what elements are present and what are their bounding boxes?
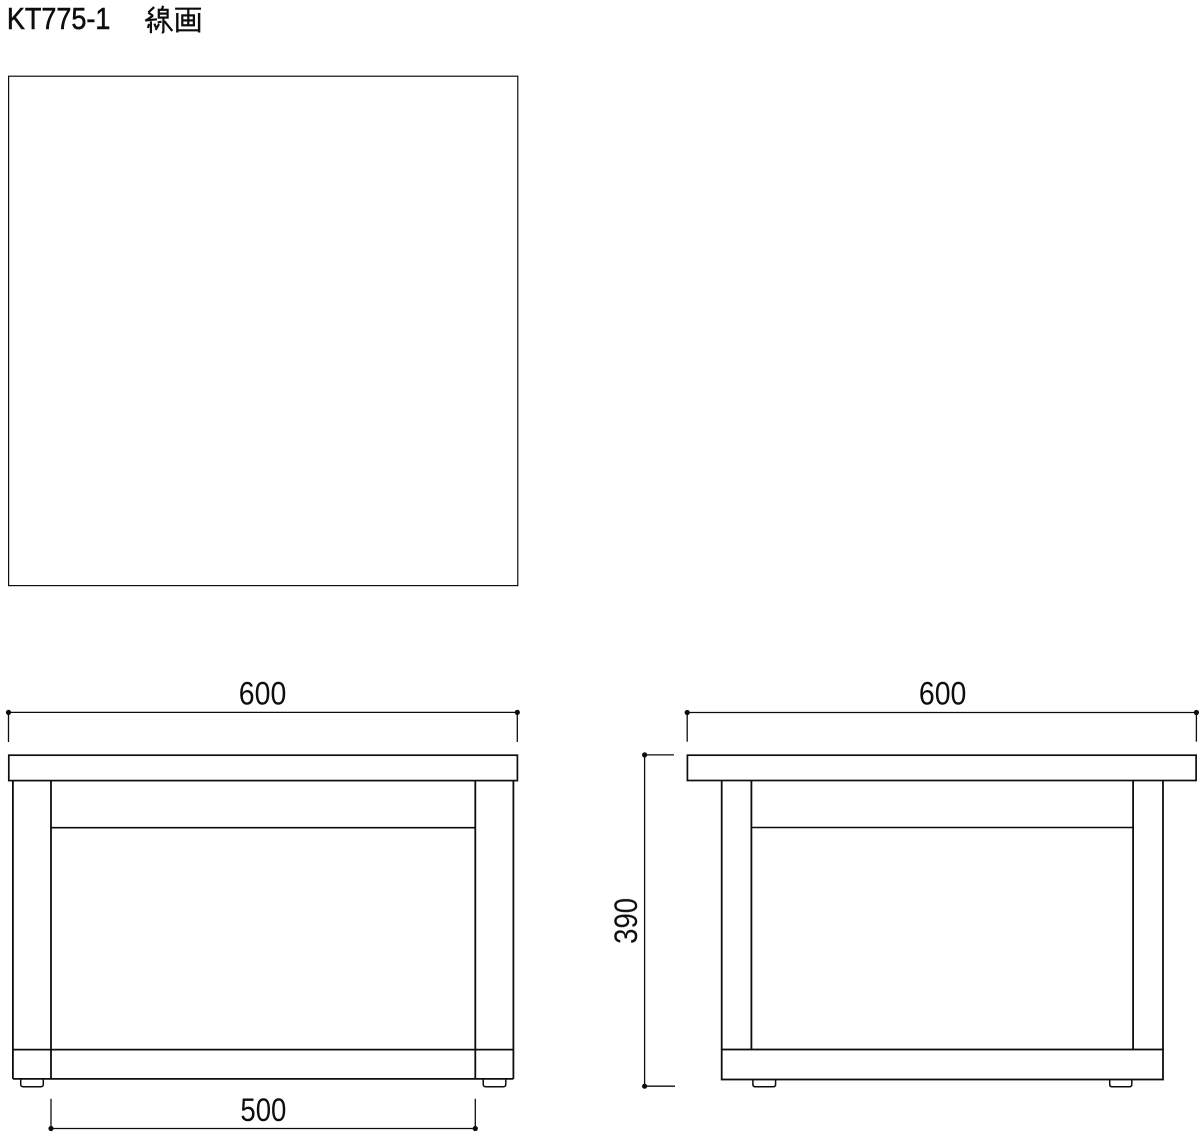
svg-text:390: 390	[608, 898, 644, 944]
svg-text:600: 600	[239, 676, 286, 712]
svg-text:600: 600	[919, 676, 967, 712]
svg-text:500: 500	[240, 1092, 286, 1128]
svg-text:KT775-1: KT775-1	[7, 2, 111, 36]
